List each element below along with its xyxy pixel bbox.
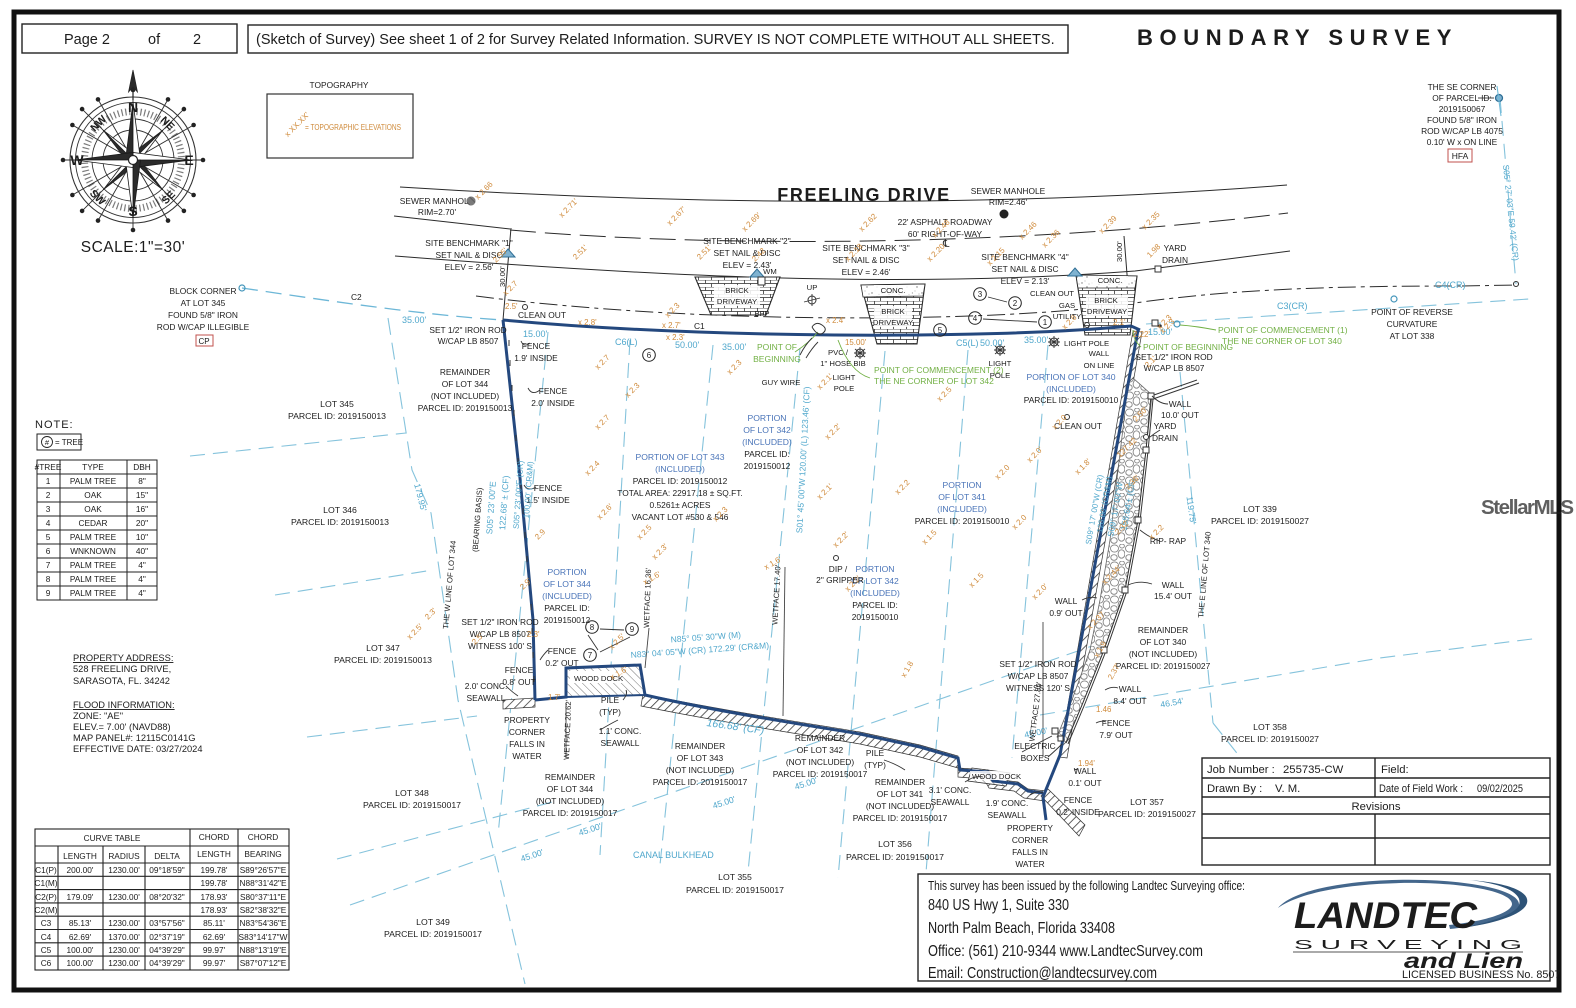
svg-text:99.97': 99.97' bbox=[203, 945, 226, 955]
svg-text:CORNER: CORNER bbox=[1012, 835, 1048, 845]
svg-text:CEDAR: CEDAR bbox=[78, 518, 107, 528]
svg-text:2019150012: 2019150012 bbox=[744, 461, 791, 471]
svg-text:0.2' INSIDE: 0.2' INSIDE bbox=[1056, 807, 1100, 817]
svg-text:YARD: YARD bbox=[1164, 243, 1187, 253]
svg-text:DIP /: DIP / bbox=[829, 564, 848, 574]
svg-text:SARASOTA, FL. 34242: SARASOTA, FL. 34242 bbox=[73, 676, 170, 686]
svg-text:PARCEL ID: 2019150017: PARCEL ID: 2019150017 bbox=[773, 769, 868, 779]
svg-text:1230.00': 1230.00' bbox=[108, 892, 140, 902]
svg-text:0.2' OUT: 0.2' OUT bbox=[545, 658, 578, 668]
svg-text:CORNER: CORNER bbox=[509, 727, 545, 737]
svg-text:199.78': 199.78' bbox=[201, 878, 228, 888]
svg-text:C6: C6 bbox=[41, 958, 52, 968]
svg-text:04°39'29": 04°39'29" bbox=[149, 945, 185, 955]
svg-text:C2: C2 bbox=[351, 292, 362, 302]
svg-text:30.00': 30.00' bbox=[1115, 241, 1124, 262]
svg-text:4": 4" bbox=[138, 588, 146, 598]
svg-text:StellarMLS: StellarMLS bbox=[1481, 496, 1574, 519]
svg-text:7: 7 bbox=[588, 651, 593, 660]
svg-text:DRIVEWAY: DRIVEWAY bbox=[873, 318, 913, 327]
svg-text:PARCEL ID: 2019150027: PARCEL ID: 2019150027 bbox=[1211, 516, 1309, 526]
svg-text:(INCLUDED): (INCLUDED) bbox=[542, 591, 592, 601]
svg-text:MAP PANEL#: 12115C0141G: MAP PANEL#: 12115C0141G bbox=[73, 733, 195, 743]
svg-text:PARCEL ID: 2019150013: PARCEL ID: 2019150013 bbox=[291, 517, 389, 527]
svg-text:0.9' OUT: 0.9' OUT bbox=[1049, 608, 1082, 618]
svg-text:C2(P): C2(P) bbox=[35, 892, 57, 902]
svg-text:OAK: OAK bbox=[84, 490, 102, 500]
svg-text:(INCLUDED): (INCLUDED) bbox=[850, 588, 900, 598]
svg-text:PORTION: PORTION bbox=[943, 480, 982, 490]
svg-text:= TREE: = TREE bbox=[55, 438, 83, 447]
svg-text:(TYP): (TYP) bbox=[599, 707, 621, 717]
svg-text:(NOT INCLUDED): (NOT INCLUDED) bbox=[431, 391, 499, 401]
svg-text:BLOCK CORNER: BLOCK CORNER bbox=[169, 286, 236, 296]
svg-text:(Sketch of Survey) See sheet 1: (Sketch of Survey) See sheet 1 of 2 for … bbox=[256, 32, 1055, 48]
svg-text:PROPERTY ADDRESS:: PROPERTY ADDRESS: bbox=[73, 653, 173, 663]
svg-text:09/02/2025: 09/02/2025 bbox=[1477, 783, 1523, 795]
svg-text:FENCE: FENCE bbox=[548, 646, 577, 656]
svg-text:8: 8 bbox=[590, 623, 595, 632]
svg-text:PORTION: PORTION bbox=[856, 564, 895, 574]
svg-text:Office: (561) 210-9344 www.La: Office: (561) 210-9344 www.LandtecSurvey… bbox=[928, 943, 1203, 960]
svg-text:C5: C5 bbox=[41, 945, 52, 955]
svg-text:1.5' INSIDE: 1.5' INSIDE bbox=[526, 495, 570, 505]
svg-text:1.46: 1.46 bbox=[1096, 705, 1112, 714]
svg-text:7: 7 bbox=[46, 560, 51, 570]
svg-text:PARCEL ID: 2019150013: PARCEL ID: 2019150013 bbox=[418, 403, 513, 413]
svg-text:S82°38'32"E: S82°38'32"E bbox=[240, 905, 287, 915]
svg-text:3: 3 bbox=[46, 504, 51, 514]
svg-text:PILE: PILE bbox=[601, 695, 620, 705]
svg-text:V. M.: V. M. bbox=[1275, 783, 1300, 795]
svg-text:PARCEL ID: 2019150010: PARCEL ID: 2019150010 bbox=[1024, 395, 1119, 405]
svg-text:PARCEL ID: 2019150017: PARCEL ID: 2019150017 bbox=[384, 929, 482, 939]
svg-text:3: 3 bbox=[978, 290, 983, 299]
svg-text:PROPERTY: PROPERTY bbox=[504, 715, 550, 725]
svg-text:1370.00': 1370.00' bbox=[108, 932, 140, 942]
svg-text:PARCEL ID: 2019150017: PARCEL ID: 2019150017 bbox=[846, 852, 944, 862]
svg-text:(NOT INCLUDED): (NOT INCLUDED) bbox=[786, 757, 854, 767]
svg-text:ROD W/CAP ILLEGIBLE: ROD W/CAP ILLEGIBLE bbox=[157, 322, 250, 332]
svg-text:8.4' OUT: 8.4' OUT bbox=[1113, 696, 1146, 706]
svg-text:BRICK: BRICK bbox=[725, 286, 749, 295]
svg-text:50.00': 50.00' bbox=[980, 338, 1005, 348]
svg-text:(TYP): (TYP) bbox=[864, 760, 886, 770]
svg-text:C1(M): C1(M) bbox=[34, 878, 57, 888]
svg-text:OF LOT 340: OF LOT 340 bbox=[1140, 637, 1187, 647]
svg-text:35.00': 35.00' bbox=[402, 315, 427, 325]
svg-text:S83°14'17"W: S83°14'17"W bbox=[239, 932, 288, 942]
svg-text:2: 2 bbox=[193, 32, 201, 48]
svg-text:0.5261± ACRES: 0.5261± ACRES bbox=[650, 500, 711, 510]
svg-text:8": 8" bbox=[138, 476, 146, 486]
svg-text:RADIUS: RADIUS bbox=[108, 851, 140, 861]
svg-text:100.00': 100.00' bbox=[67, 958, 94, 968]
svg-text:LENGTH: LENGTH bbox=[197, 849, 231, 859]
svg-text:40": 40" bbox=[136, 546, 148, 556]
svg-text:PARCEL ID: 2019150027: PARCEL ID: 2019150027 bbox=[1098, 809, 1196, 819]
svg-text:SET NAIL & DISC: SET NAIL & DISC bbox=[713, 248, 780, 258]
svg-text:1.9' CONC.: 1.9' CONC. bbox=[986, 798, 1029, 808]
svg-text:PARCEL ID: 2019150027: PARCEL ID: 2019150027 bbox=[1221, 734, 1319, 744]
svg-text:CHORD: CHORD bbox=[199, 832, 229, 842]
svg-text:LOT 347: LOT 347 bbox=[366, 643, 400, 653]
svg-text:CANAL BULKHEAD: CANAL BULKHEAD bbox=[633, 850, 714, 860]
svg-text:C6(L): C6(L) bbox=[615, 337, 638, 347]
svg-text:WALL: WALL bbox=[1055, 596, 1078, 606]
svg-text:1: 1 bbox=[46, 476, 51, 486]
svg-text:2.0' CONC.: 2.0' CONC. bbox=[465, 681, 508, 691]
svg-text:DBH: DBH bbox=[133, 462, 151, 472]
svg-text:15": 15" bbox=[136, 490, 148, 500]
svg-text:16": 16" bbox=[136, 504, 148, 514]
svg-text:OF LOT 344: OF LOT 344 bbox=[442, 379, 489, 389]
svg-text:BEARING: BEARING bbox=[244, 849, 281, 859]
svg-text:0.8' OUT: 0.8' OUT bbox=[502, 677, 535, 687]
svg-text:PARCEL ID: 2019150013: PARCEL ID: 2019150013 bbox=[288, 411, 386, 421]
svg-text:REMAINDER: REMAINDER bbox=[795, 733, 845, 743]
svg-text:PARCEL ID: 2019150017: PARCEL ID: 2019150017 bbox=[853, 813, 948, 823]
svg-text:N83°54'36"E: N83°54'36"E bbox=[239, 918, 287, 928]
svg-text:Field:: Field: bbox=[1381, 764, 1409, 776]
svg-text:CLEAN OUT: CLEAN OUT bbox=[1030, 289, 1074, 298]
svg-text:02°37'19": 02°37'19" bbox=[149, 932, 185, 942]
svg-text:85.11': 85.11' bbox=[203, 918, 225, 928]
svg-text:N88°31'42"E: N88°31'42"E bbox=[239, 878, 287, 888]
svg-text:2019150067: 2019150067 bbox=[1439, 104, 1486, 114]
svg-text:08°20'32": 08°20'32" bbox=[149, 892, 185, 902]
svg-text:LENGTH: LENGTH bbox=[63, 851, 97, 861]
svg-text:PARCEL ID: 2019150017: PARCEL ID: 2019150017 bbox=[363, 800, 461, 810]
svg-text:FENCE: FENCE bbox=[534, 483, 563, 493]
svg-text:S: S bbox=[128, 203, 137, 219]
svg-text:200.00': 200.00' bbox=[67, 865, 94, 875]
svg-text:PILE: PILE bbox=[866, 748, 885, 758]
svg-text:0.10' W x ON LINE: 0.10' W x ON LINE bbox=[1427, 137, 1498, 147]
svg-text:REMAINDER: REMAINDER bbox=[675, 741, 725, 751]
svg-text:SET 1/2" IRON ROD: SET 1/2" IRON ROD bbox=[461, 617, 538, 627]
svg-text:528 FREELING DRIVE,: 528 FREELING DRIVE, bbox=[73, 664, 171, 674]
svg-text:CONC.: CONC. bbox=[1098, 276, 1123, 285]
svg-text:FALLS IN: FALLS IN bbox=[1012, 847, 1048, 857]
svg-text:15.00': 15.00' bbox=[523, 329, 548, 339]
svg-text:(INCLUDED): (INCLUDED) bbox=[937, 504, 987, 514]
svg-text:C5(L): C5(L) bbox=[956, 338, 979, 348]
svg-text:ELEV = 2.56': ELEV = 2.56' bbox=[445, 262, 494, 272]
svg-text:PARCEL ID:: PARCEL ID: bbox=[852, 600, 898, 610]
svg-text:SET NAIL & DISC: SET NAIL & DISC bbox=[991, 264, 1058, 274]
svg-text:1230.00': 1230.00' bbox=[108, 865, 140, 875]
svg-text:HFA: HFA bbox=[1452, 151, 1469, 161]
svg-text:RIM=2.70': RIM=2.70' bbox=[418, 207, 457, 217]
svg-text:THE SE CORNER: THE SE CORNER bbox=[1428, 82, 1497, 92]
svg-text:1.7': 1.7' bbox=[548, 693, 561, 702]
svg-text:Revisions: Revisions bbox=[1352, 801, 1401, 813]
svg-text:W: W bbox=[70, 152, 84, 168]
svg-text:09°18'59": 09°18'59" bbox=[149, 865, 185, 875]
svg-text:OF LOT 341: OF LOT 341 bbox=[877, 789, 924, 799]
svg-text:(NOT INCLUDED): (NOT INCLUDED) bbox=[536, 796, 604, 806]
svg-text:2.3': 2.3' bbox=[527, 630, 540, 639]
svg-text:C2(M): C2(M) bbox=[34, 905, 57, 915]
svg-text:1: 1 bbox=[1043, 318, 1048, 327]
svg-text:PROPERTY: PROPERTY bbox=[1007, 823, 1053, 833]
svg-text:5: 5 bbox=[938, 326, 943, 335]
svg-text:2: 2 bbox=[46, 490, 51, 500]
svg-text:x 2.4': x 2.4' bbox=[826, 316, 845, 325]
svg-text:04°39'29": 04°39'29" bbox=[149, 958, 185, 968]
svg-text:POLE: POLE bbox=[834, 384, 855, 393]
svg-text:FALLS IN: FALLS IN bbox=[509, 739, 545, 749]
svg-text:This survey has been issued by: This survey has been issued by the follo… bbox=[928, 879, 1245, 893]
svg-text:BFP: BFP bbox=[755, 309, 770, 318]
svg-text:9: 9 bbox=[630, 625, 635, 634]
svg-text:(INCLUDED): (INCLUDED) bbox=[655, 464, 705, 474]
svg-text:FOUND 5/8" IRON: FOUND 5/8" IRON bbox=[1427, 115, 1497, 125]
svg-text:7.9' OUT: 7.9' OUT bbox=[1099, 730, 1132, 740]
svg-text:35.00': 35.00' bbox=[722, 342, 747, 352]
svg-text:20": 20" bbox=[136, 518, 148, 528]
svg-text:x 2.8': x 2.8' bbox=[578, 318, 597, 327]
svg-text:YARD: YARD bbox=[1154, 421, 1177, 431]
svg-text:WALL: WALL bbox=[1119, 684, 1142, 694]
svg-text:LOT 356: LOT 356 bbox=[878, 839, 912, 849]
svg-text:0.1' OUT: 0.1' OUT bbox=[1068, 778, 1101, 788]
svg-text:99.97': 99.97' bbox=[203, 958, 226, 968]
svg-text:FENCE: FENCE bbox=[539, 386, 568, 396]
svg-text:4: 4 bbox=[46, 518, 51, 528]
svg-text:C4(CR): C4(CR) bbox=[1435, 280, 1466, 290]
svg-text:9: 9 bbox=[46, 588, 51, 598]
svg-text:CHORD: CHORD bbox=[248, 832, 278, 842]
svg-text:SEAWALL: SEAWALL bbox=[601, 738, 640, 748]
svg-text:FLOOD INFORMATION:: FLOOD INFORMATION: bbox=[73, 700, 175, 710]
svg-text:2.1': 2.1' bbox=[1113, 318, 1126, 327]
svg-text:FENCE: FENCE bbox=[522, 341, 551, 351]
svg-text:W/CAP LB 8507: W/CAP LB 8507 bbox=[438, 336, 499, 346]
svg-text:LICENSED BUSINESS No. 8507: LICENSED BUSINESS No. 8507 bbox=[1402, 969, 1560, 981]
svg-text:OF LOT 344: OF LOT 344 bbox=[543, 579, 591, 589]
svg-text:178.93': 178.93' bbox=[201, 892, 228, 902]
svg-text:ON LINE: ON LINE bbox=[1084, 361, 1115, 370]
svg-text:PVC /: PVC / bbox=[828, 348, 849, 357]
svg-text:62.69': 62.69' bbox=[203, 932, 226, 942]
svg-text:OAK: OAK bbox=[84, 504, 102, 514]
svg-text:2019150010: 2019150010 bbox=[852, 612, 899, 622]
svg-text:AT LOT 338: AT LOT 338 bbox=[1390, 331, 1435, 341]
svg-text:1230.00': 1230.00' bbox=[108, 918, 140, 928]
svg-text:LOT 348: LOT 348 bbox=[395, 788, 429, 798]
svg-text:LOT 349: LOT 349 bbox=[416, 917, 450, 927]
svg-text:2.0' INSIDE: 2.0' INSIDE bbox=[531, 398, 575, 408]
svg-text:CONC.: CONC. bbox=[881, 286, 906, 295]
svg-text:WATER: WATER bbox=[512, 751, 541, 761]
svg-text:EFFECTIVE DATE: 03/27/2024: EFFECTIVE DATE: 03/27/2024 bbox=[73, 744, 203, 754]
svg-text:SCALE:1"=30': SCALE:1"=30' bbox=[81, 239, 186, 256]
svg-text:LOT 339: LOT 339 bbox=[1243, 504, 1277, 514]
svg-text:POINT OF COMMENCEMENT (1): POINT OF COMMENCEMENT (1) bbox=[1218, 325, 1348, 335]
svg-text:SEAWALL: SEAWALL bbox=[988, 810, 1027, 820]
svg-text:(NOT INCLUDED): (NOT INCLUDED) bbox=[866, 801, 934, 811]
svg-text:OF LOT 343: OF LOT 343 bbox=[677, 753, 724, 763]
svg-text:85.13': 85.13' bbox=[69, 918, 92, 928]
svg-text:DRIVEWAY: DRIVEWAY bbox=[717, 297, 757, 306]
svg-text:THE NE CORNER OF LOT 340: THE NE CORNER OF LOT 340 bbox=[1222, 336, 1342, 346]
svg-text:(NOT INCLUDED): (NOT INCLUDED) bbox=[1129, 649, 1197, 659]
svg-text:FENCE: FENCE bbox=[1064, 795, 1093, 805]
svg-text:PORTION: PORTION bbox=[548, 567, 587, 577]
svg-text:S89°26'57"E: S89°26'57"E bbox=[240, 865, 287, 875]
svg-text:SEWER MANHOLE: SEWER MANHOLE bbox=[400, 196, 475, 206]
svg-text:840 US Hwy 1, Suite 330: 840 US Hwy 1, Suite 330 bbox=[928, 897, 1069, 914]
svg-text:PARCEL ID: 2019150017: PARCEL ID: 2019150017 bbox=[523, 808, 618, 818]
svg-text:C4: C4 bbox=[41, 932, 52, 942]
svg-text:CLEAN OUT: CLEAN OUT bbox=[518, 310, 566, 320]
svg-text:179.09': 179.09' bbox=[67, 892, 94, 902]
svg-text:= TOPOGRAPHIC ELEVATIONS: = TOPOGRAPHIC ELEVATIONS bbox=[305, 123, 401, 132]
svg-text:C3(CR): C3(CR) bbox=[1277, 301, 1308, 311]
svg-text:FENCE: FENCE bbox=[1102, 718, 1131, 728]
svg-text:TYPE: TYPE bbox=[82, 462, 104, 472]
svg-text:ELEV.= 7.00' (NAVD88): ELEV.= 7.00' (NAVD88) bbox=[73, 722, 171, 732]
svg-text:LOT 357: LOT 357 bbox=[1130, 797, 1164, 807]
svg-text:15.4' OUT: 15.4' OUT bbox=[1154, 591, 1192, 601]
svg-text:PALM TREE: PALM TREE bbox=[70, 574, 117, 584]
svg-text:Drawn By :: Drawn By : bbox=[1207, 783, 1262, 795]
svg-text:PARCEL ID: 2019150010: PARCEL ID: 2019150010 bbox=[915, 516, 1010, 526]
svg-text:255735-CW: 255735-CW bbox=[1283, 764, 1344, 776]
svg-text:PALM TREE: PALM TREE bbox=[70, 532, 117, 542]
svg-text:RIM=2.46': RIM=2.46' bbox=[989, 197, 1028, 207]
svg-text:WATER: WATER bbox=[1015, 859, 1044, 869]
svg-text:199.78': 199.78' bbox=[201, 865, 228, 875]
svg-text:OF LOT 342: OF LOT 342 bbox=[797, 745, 844, 755]
svg-text:E: E bbox=[184, 152, 193, 168]
svg-text:LIGHT POLE: LIGHT POLE bbox=[1064, 339, 1109, 348]
svg-text:FOUND 5/8" IRON: FOUND 5/8" IRON bbox=[168, 310, 238, 320]
svg-text:FENCE: FENCE bbox=[505, 665, 534, 675]
svg-text:2: 2 bbox=[1013, 299, 1018, 308]
svg-text:North Palm Beach, Florida 3340: North Palm Beach, Florida 33408 bbox=[928, 920, 1115, 937]
svg-text:4": 4" bbox=[138, 560, 146, 570]
svg-text:1230.00': 1230.00' bbox=[108, 945, 140, 955]
svg-text:PARCEL ID: 2019150012: PARCEL ID: 2019150012 bbox=[633, 476, 728, 486]
svg-text:1230.00': 1230.00' bbox=[108, 958, 140, 968]
svg-text:DRIVEWAY: DRIVEWAY bbox=[1087, 307, 1127, 316]
svg-text:03°57'56": 03°57'56" bbox=[149, 918, 185, 928]
svg-text:OF LOT 344: OF LOT 344 bbox=[547, 784, 594, 794]
svg-text:PARCEL ID: 2019150017: PARCEL ID: 2019150017 bbox=[653, 777, 748, 787]
svg-text:LOT 358: LOT 358 bbox=[1253, 722, 1287, 732]
svg-text:10": 10" bbox=[136, 532, 148, 542]
svg-text:PALM TREE: PALM TREE bbox=[70, 588, 117, 598]
svg-text:2" GRIPPER: 2" GRIPPER bbox=[816, 575, 864, 585]
svg-text:PARCEL ID: 2019150027: PARCEL ID: 2019150027 bbox=[1116, 661, 1211, 671]
svg-text:REMAINDER: REMAINDER bbox=[875, 777, 925, 787]
svg-text:REMAINDER: REMAINDER bbox=[545, 772, 595, 782]
svg-text:NOTE:: NOTE: bbox=[35, 419, 74, 431]
svg-text:(INCLUDED): (INCLUDED) bbox=[1046, 384, 1096, 394]
svg-text:62.69': 62.69' bbox=[69, 932, 92, 942]
svg-text:TOTAL AREA: 22917.18 ± SQ.FT.: TOTAL AREA: 22917.18 ± SQ.FT. bbox=[617, 488, 742, 498]
svg-text:1.9' INSIDE: 1.9' INSIDE bbox=[514, 353, 558, 363]
svg-text:(NOT INCLUDED): (NOT INCLUDED) bbox=[666, 765, 734, 775]
svg-text:6: 6 bbox=[647, 351, 652, 360]
svg-text:SITE BENCHMARK "3": SITE BENCHMARK "3" bbox=[822, 243, 909, 253]
svg-text:LOT 345: LOT 345 bbox=[320, 399, 354, 409]
svg-text:2.22': 2.22' bbox=[1133, 330, 1150, 339]
svg-text:(INCLUDED): (INCLUDED) bbox=[742, 437, 792, 447]
svg-text:Date of Field Work :: Date of Field Work : bbox=[1379, 783, 1463, 795]
svg-text:3.1' CONC.: 3.1' CONC. bbox=[929, 785, 972, 795]
svg-text:OF LOT 342: OF LOT 342 bbox=[743, 425, 791, 435]
svg-text:SET 1/2" IRON ROD: SET 1/2" IRON ROD bbox=[429, 325, 506, 335]
svg-text:PORTION: PORTION bbox=[748, 413, 787, 423]
svg-text:BRICK: BRICK bbox=[881, 307, 905, 316]
svg-text:W/CAP LB 8507: W/CAP LB 8507 bbox=[1008, 671, 1069, 681]
svg-text:WM: WM bbox=[763, 267, 777, 276]
svg-text:SEWER MANHOLE: SEWER MANHOLE bbox=[971, 186, 1046, 196]
svg-text:S80°37'11"E: S80°37'11"E bbox=[240, 892, 286, 902]
svg-text:C3: C3 bbox=[41, 918, 52, 928]
svg-text:C1(P): C1(P) bbox=[35, 865, 57, 875]
svg-text:DRAIN: DRAIN bbox=[1162, 255, 1188, 265]
svg-text:10.0' OUT: 10.0' OUT bbox=[1161, 410, 1199, 420]
svg-text:WALL: WALL bbox=[1089, 349, 1110, 358]
svg-text:POINT OF COMMENCEMENT (2): POINT OF COMMENCEMENT (2) bbox=[874, 365, 1004, 375]
svg-text:SEAWALL: SEAWALL bbox=[467, 693, 506, 703]
svg-text:30.00': 30.00' bbox=[498, 266, 507, 287]
svg-text:UP: UP bbox=[807, 283, 818, 292]
svg-text:LIGHT: LIGHT bbox=[833, 373, 856, 382]
svg-text:4: 4 bbox=[973, 314, 978, 323]
svg-text:of: of bbox=[148, 32, 161, 48]
svg-text:8: 8 bbox=[46, 574, 51, 584]
svg-text:Job Number :: Job Number : bbox=[1207, 764, 1275, 776]
svg-text:5: 5 bbox=[46, 532, 51, 542]
svg-text:15.00': 15.00' bbox=[845, 338, 867, 347]
svg-text:POINT OF REVERSE: POINT OF REVERSE bbox=[1371, 307, 1453, 317]
svg-text:2019150012: 2019150012 bbox=[544, 615, 591, 625]
svg-text:35.00': 35.00' bbox=[1024, 335, 1049, 345]
svg-text:BOXES: BOXES bbox=[1021, 753, 1050, 763]
svg-text:LANDTEC: LANDTEC bbox=[1294, 895, 1478, 936]
svg-text:CP: CP bbox=[198, 337, 209, 346]
svg-text:FREELING DRIVE: FREELING DRIVE bbox=[777, 185, 950, 205]
svg-text:PARCEL ID: 2019150013: PARCEL ID: 2019150013 bbox=[334, 655, 432, 665]
svg-text:ELEV = 2.13': ELEV = 2.13' bbox=[1001, 276, 1050, 286]
svg-text:POINT OF: POINT OF bbox=[757, 342, 797, 352]
svg-text:LOT 346: LOT 346 bbox=[323, 505, 357, 515]
svg-text:SEAWALL: SEAWALL bbox=[931, 797, 970, 807]
svg-text:S87°07'12"E: S87°07'12"E bbox=[240, 958, 287, 968]
svg-text:ZONE: "AE": ZONE: "AE" bbox=[73, 711, 123, 721]
svg-text:PARCEL ID:: PARCEL ID: bbox=[544, 603, 590, 613]
svg-text:REMAINDER: REMAINDER bbox=[440, 367, 490, 377]
svg-text:WALL: WALL bbox=[1169, 399, 1192, 409]
svg-text:GAS: GAS bbox=[1059, 301, 1075, 310]
svg-text:1" HOSE BIB: 1" HOSE BIB bbox=[820, 359, 865, 368]
svg-text:PARCEL ID: 2019150017: PARCEL ID: 2019150017 bbox=[686, 885, 784, 895]
svg-text:ROD W/CAP LB 4075: ROD W/CAP LB 4075 bbox=[1421, 126, 1503, 136]
svg-text:2.5': 2.5' bbox=[505, 302, 518, 311]
svg-text:PALM TREE: PALM TREE bbox=[70, 560, 117, 570]
svg-text:ELEV = 2.46': ELEV = 2.46' bbox=[842, 267, 891, 277]
svg-text:#TREE: #TREE bbox=[35, 462, 62, 472]
svg-text:POINT OF BEGINNING: POINT OF BEGINNING bbox=[1143, 342, 1233, 352]
svg-text:SET 1/2" IRON ROD: SET 1/2" IRON ROD bbox=[999, 659, 1076, 669]
svg-text:BRICK: BRICK bbox=[1094, 296, 1118, 305]
